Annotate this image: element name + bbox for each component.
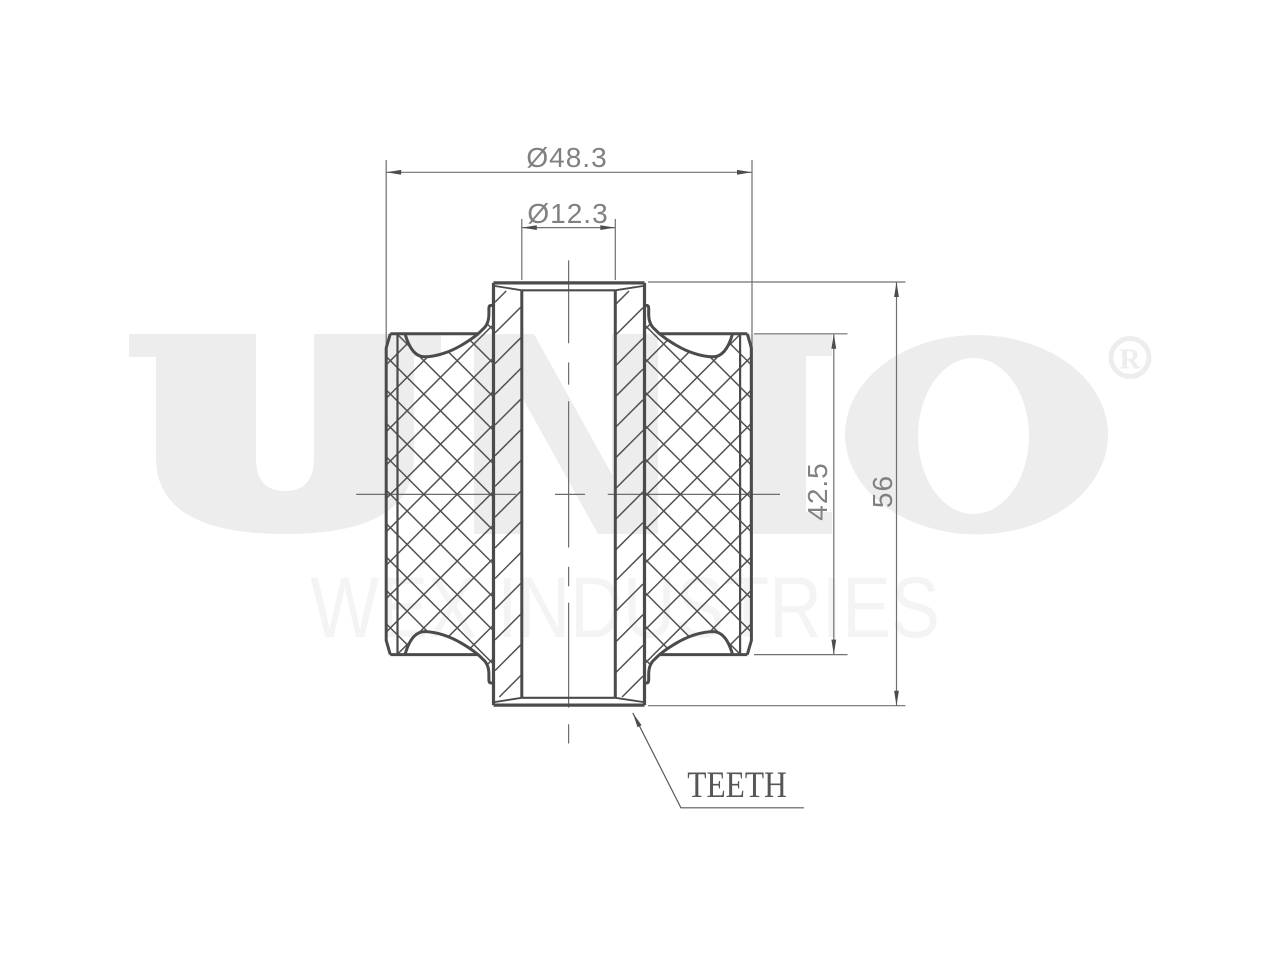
svg-text:TEETH: TEETH <box>687 765 787 806</box>
svg-text:Ø12.3: Ø12.3 <box>527 198 608 229</box>
svg-text:WEX INDUSTRIES: WEX INDUSTRIES <box>310 559 939 655</box>
svg-text:R: R <box>1120 344 1142 376</box>
svg-text:56: 56 <box>867 475 898 508</box>
svg-text:Ø48.3: Ø48.3 <box>526 142 607 173</box>
svg-text:42.5: 42.5 <box>802 462 833 521</box>
